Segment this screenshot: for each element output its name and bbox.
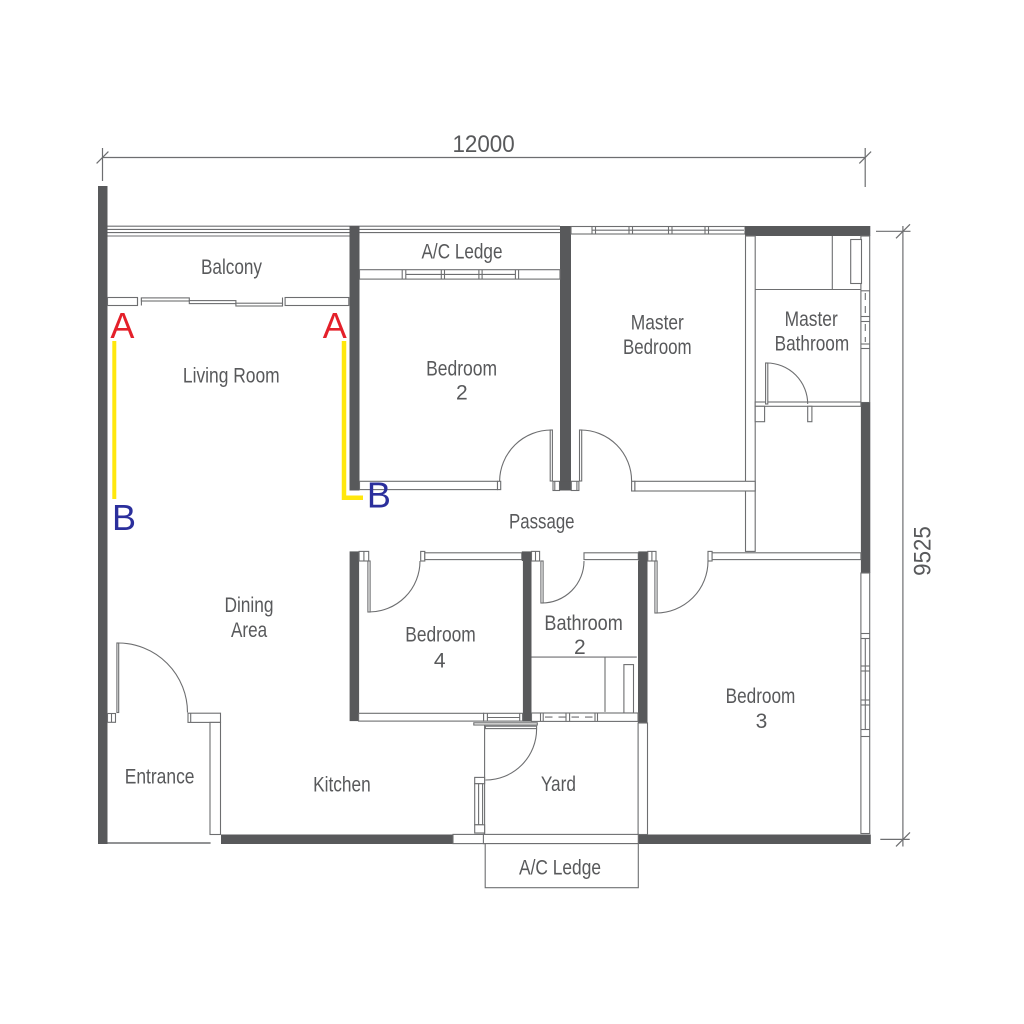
- svg-text:Balcony: Balcony: [201, 256, 262, 279]
- svg-text:A/C Ledge: A/C Ledge: [519, 857, 601, 880]
- svg-text:Bedroom: Bedroom: [405, 624, 476, 647]
- svg-text:Yard: Yard: [541, 773, 576, 796]
- svg-text:12000: 12000: [452, 131, 514, 158]
- svg-text:3: 3: [756, 710, 768, 733]
- svg-text:B: B: [112, 497, 136, 538]
- svg-text:Bedroom: Bedroom: [623, 336, 692, 359]
- svg-text:Bedroom: Bedroom: [426, 357, 497, 380]
- svg-text:2: 2: [456, 382, 468, 405]
- svg-text:Entrance: Entrance: [125, 766, 195, 789]
- svg-text:A/C Ledge: A/C Ledge: [422, 241, 503, 264]
- svg-text:9525: 9525: [910, 526, 937, 576]
- svg-text:Bathroom: Bathroom: [775, 333, 850, 356]
- svg-text:Bedroom: Bedroom: [726, 685, 796, 708]
- svg-text:Passage: Passage: [509, 511, 575, 534]
- svg-text:Kitchen: Kitchen: [313, 773, 371, 796]
- svg-text:Bathroom: Bathroom: [544, 612, 622, 635]
- svg-text:Master: Master: [631, 312, 684, 335]
- svg-text:2: 2: [574, 636, 586, 659]
- svg-text:A: A: [323, 305, 347, 346]
- svg-text:Dining: Dining: [224, 594, 273, 617]
- svg-text:B: B: [367, 475, 391, 516]
- svg-text:Master: Master: [785, 308, 838, 331]
- svg-text:A: A: [110, 305, 134, 346]
- svg-text:Living Room: Living Room: [183, 364, 280, 387]
- svg-text:Area: Area: [231, 619, 267, 642]
- svg-text:4: 4: [434, 650, 446, 673]
